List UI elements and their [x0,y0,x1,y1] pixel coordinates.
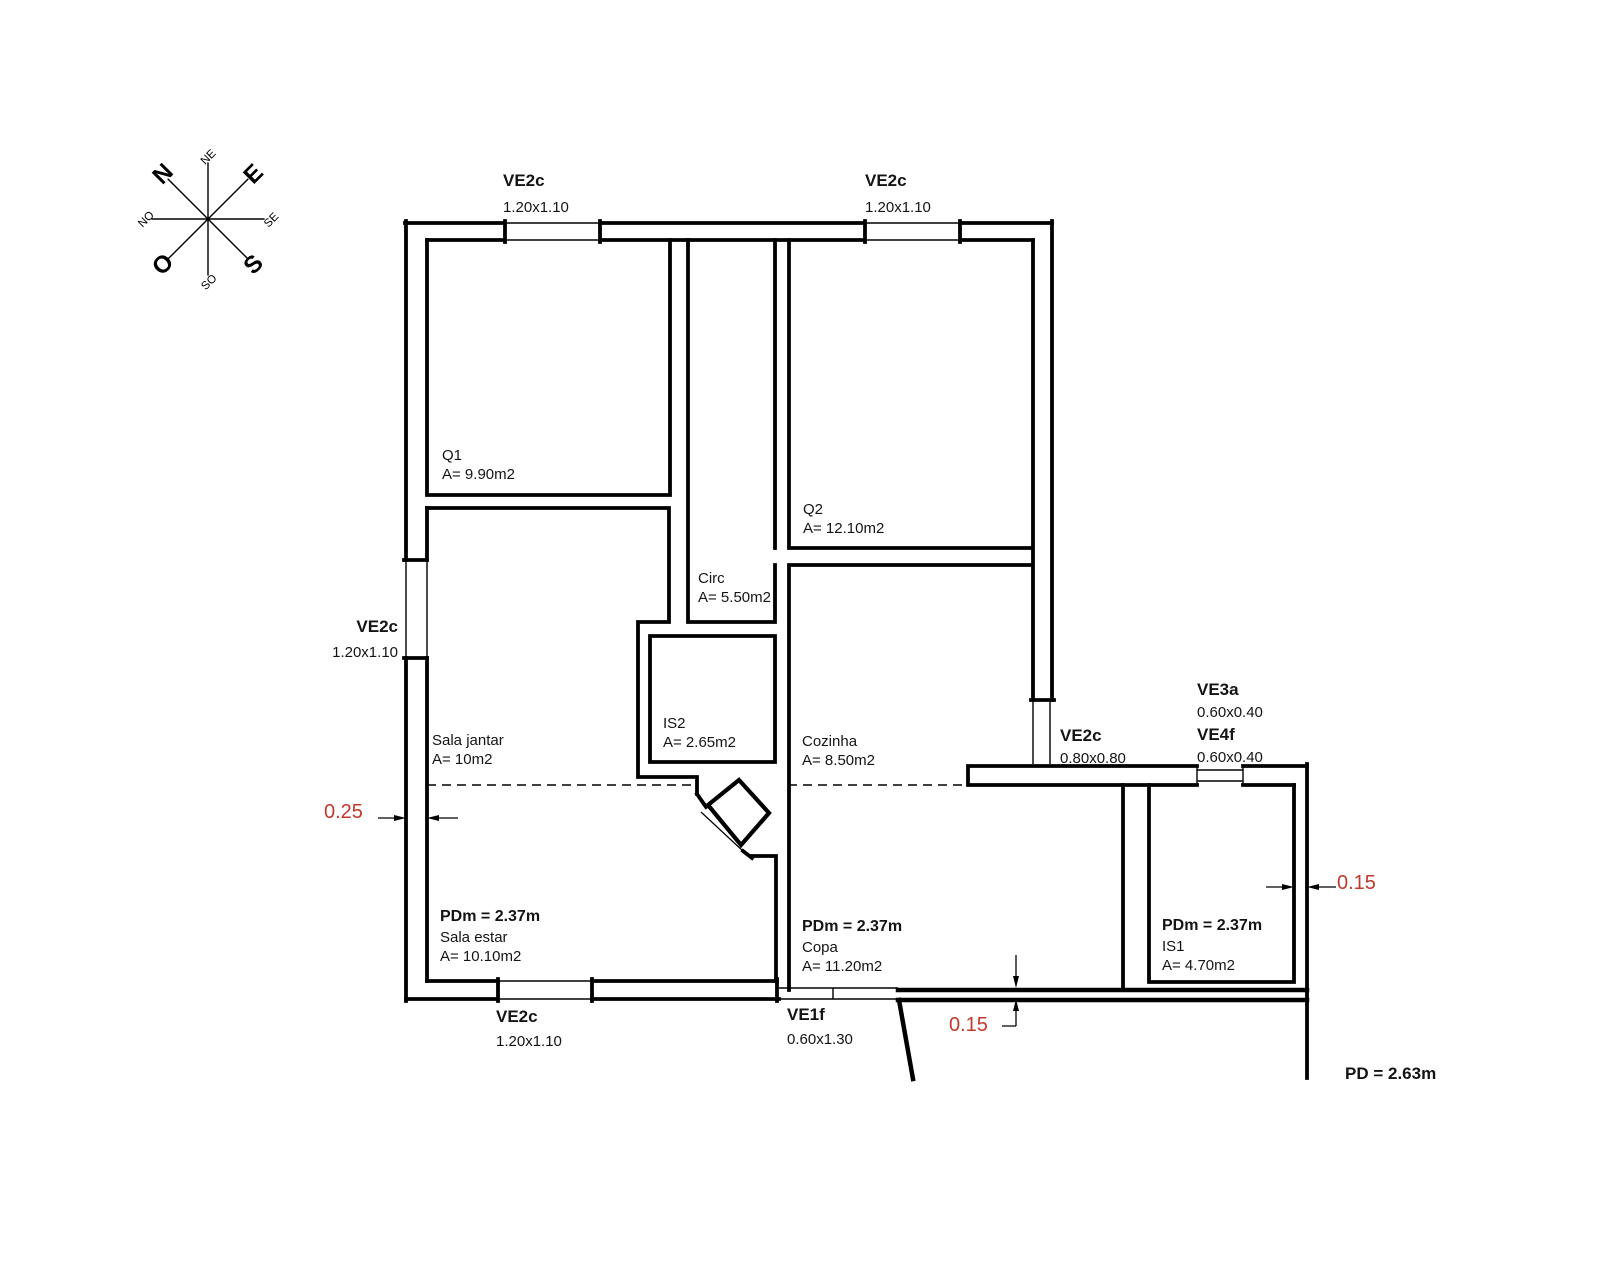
window-size-ve4f: 0.60x0.40 [1197,748,1263,767]
ceiling-height: PDm = 2.37m [440,907,540,926]
ceiling-height-pd: PD = 2.63m [1345,1064,1436,1083]
room-label-is2: IS2 A= 2.65m2 [663,714,736,752]
room-area: A= 9.90m2 [442,465,515,484]
room-name: Q1 [442,446,515,465]
window-size-ve3a: 0.60x0.40 [1197,703,1263,722]
compass-northeast-label: NE [199,147,219,167]
floor-plan-page: N E S O NE SE SO NO VE2c 1.20x1.10 VE2c … [0,0,1600,1280]
window-size: 1.20x1.10 [288,643,398,662]
window-label-ve1f: VE1f 0.60x1.30 [787,1005,853,1049]
room-name: Sala estar [440,928,540,947]
room-name: Copa [802,938,902,957]
window-size: 1.20x1.10 [503,198,569,217]
window-label-ve3a-ve4f: VE3a 0.60x0.40 VE4f 0.60x0.40 [1197,680,1263,767]
window-name: VE2c [288,617,398,636]
room-area: A= 12.10m2 [803,519,884,538]
compass-rose: N E S O NE SE SO NO [102,114,314,326]
compass-southeast-label: SE [262,211,282,231]
room-label-circ: Circ A= 5.50m2 [698,569,771,607]
room-area: A= 2.65m2 [663,733,736,752]
room-area: A= 10.10m2 [440,947,540,966]
window-label-ve2c-top-right: VE2c 1.20x1.10 [865,171,931,217]
room-label-q2: Q2 A= 12.10m2 [803,500,884,538]
room-area: A= 11.20m2 [802,957,902,976]
window-label-ve2c-left: VE2c 1.20x1.10 [288,617,398,662]
room-name: Sala jantar [432,731,504,750]
ceiling-height: PDm = 2.37m [802,917,902,936]
room-area: A= 10m2 [432,750,504,769]
room-name: Cozinha [802,732,875,751]
window-label-ve2c-bottom: VE2c 1.20x1.10 [496,1007,562,1051]
room-label-sala-estar: PDm = 2.37m Sala estar A= 10.10m2 [440,907,540,966]
room-label-sala-jantar: Sala jantar A= 10m2 [432,731,504,769]
room-name: IS2 [663,714,736,733]
room-area: A= 4.70m2 [1162,956,1262,975]
window-name: VE2c [865,171,931,190]
entrance-door-leaf [899,1000,913,1079]
window-size: 1.20x1.10 [496,1032,562,1051]
window-name: VE2c [503,171,569,190]
interior-door [701,780,769,852]
window-name-ve3a: VE3a [1197,680,1263,699]
room-label-copa: PDm = 2.37m Copa A= 11.20m2 [802,917,902,976]
room-label-cozinha: Cozinha A= 8.50m2 [802,732,875,770]
window-name: VE2c [496,1007,562,1026]
room-area: A= 8.50m2 [802,751,875,770]
room-name: Q2 [803,500,884,519]
room-name: IS1 [1162,937,1262,956]
ceiling-height: PDm = 2.37m [1162,916,1262,935]
dimension-wall-right: 0.15 [1337,874,1376,893]
window-name: VE2c [1060,726,1126,745]
window-label-ve2c-top-left: VE2c 1.20x1.10 [503,171,569,217]
window-size: 0.60x1.30 [787,1030,853,1049]
room-name: Circ [698,569,771,588]
floor-plan-drawing: N E S O NE SE SO NO [0,0,1600,1280]
window-glazing-lines [406,223,1243,999]
room-label-q1: Q1 A= 9.90m2 [442,446,515,484]
window-size: 0.80x0.80 [1060,749,1126,768]
compass-southwest-label: SO [199,272,219,292]
window-name: VE1f [787,1005,853,1024]
room-label-is1: PDm = 2.37m IS1 A= 4.70m2 [1162,916,1262,975]
window-size: 1.20x1.10 [865,198,931,217]
window-name-ve4f: VE4f [1197,725,1263,744]
dimension-wall-left: 0.25 [324,803,363,822]
dimension-wall-bottom: 0.15 [949,1016,988,1035]
compass-northwest-label: NO [136,209,157,230]
window-label-ve2c-east: VE2c 0.80x0.80 [1060,726,1126,768]
room-area: A= 5.50m2 [698,588,771,607]
